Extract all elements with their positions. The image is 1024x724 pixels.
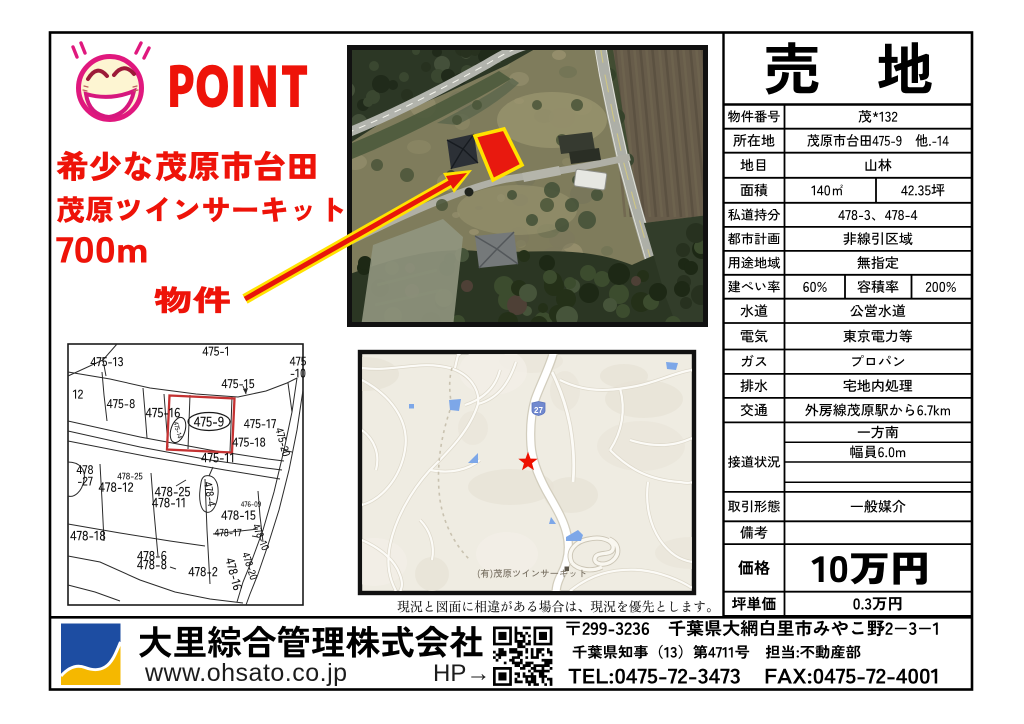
svg-text:www.ohsato.co.jp: www.ohsato.co.jp [144, 659, 348, 687]
svg-text:27: 27 [534, 406, 543, 415]
svg-text:HP→: HP→ [433, 660, 490, 687]
